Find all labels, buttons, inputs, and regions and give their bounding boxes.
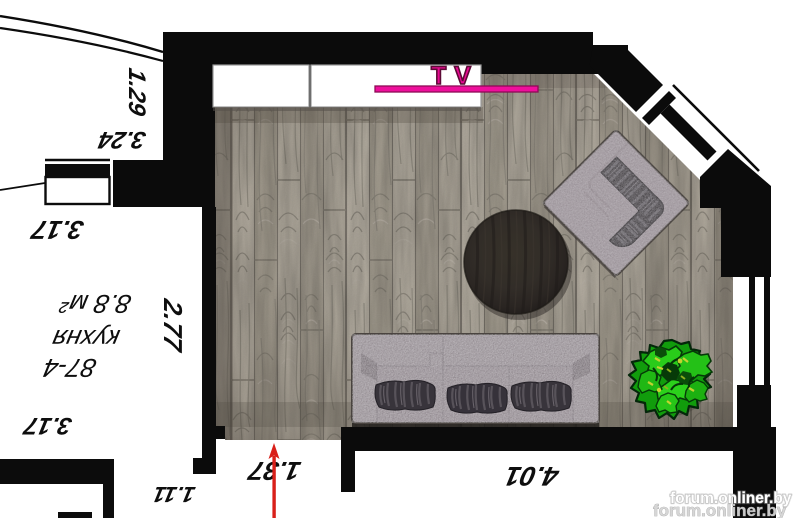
svg-text:TV: TV [431,62,479,90]
svg-text:4.01: 4.01 [502,461,562,492]
svg-text:1.11: 1.11 [151,482,197,507]
svg-text:3.17: 3.17 [20,412,74,439]
svg-text:3.24: 3.24 [95,126,148,153]
svg-text:1.29: 1.29 [123,66,150,119]
svg-text:кухня: кухня [49,324,122,354]
svg-text:2.77: 2.77 [158,296,188,355]
svg-text:3.17: 3.17 [28,215,86,245]
svg-text:87-4: 87-4 [41,353,99,383]
svg-text:forum.onliner.by: forum.onliner.by [670,490,792,507]
svg-text:8.8 м²: 8.8 м² [57,289,134,319]
